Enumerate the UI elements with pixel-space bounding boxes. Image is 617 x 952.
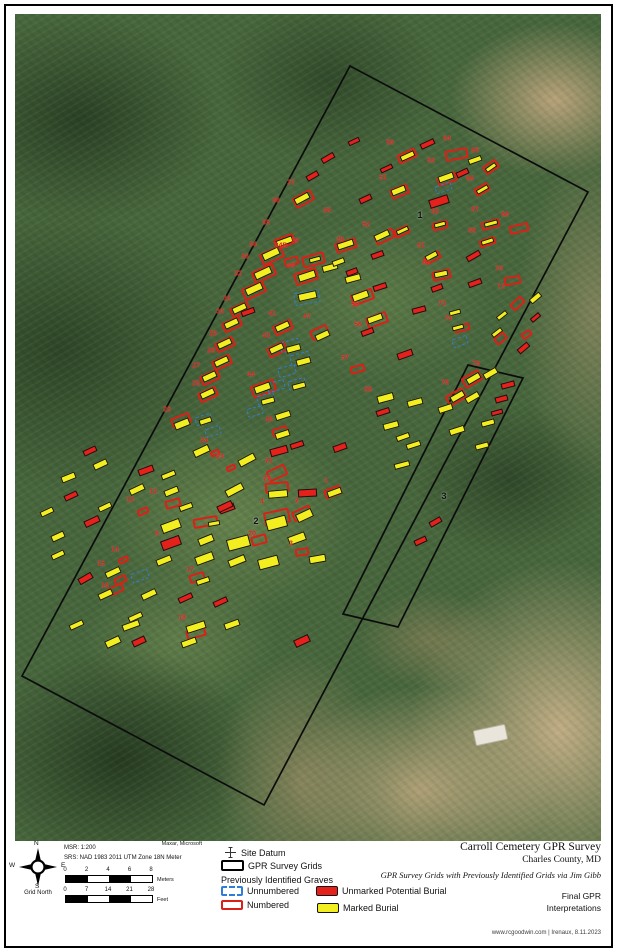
survey-grid-number-label: 2	[253, 516, 258, 526]
compass-rose-icon	[18, 847, 58, 887]
grave-number-label: 61	[417, 243, 425, 250]
scalebar-feet-bar	[65, 895, 153, 903]
grave-number-label: 50	[386, 140, 394, 147]
grave-number-label: 66	[466, 176, 474, 183]
marked-burial	[474, 441, 489, 450]
grave-number-label: 47	[303, 314, 311, 321]
grave-number-label: 17	[186, 567, 194, 574]
marked-burial	[480, 418, 495, 427]
grave-number-label: 69	[468, 228, 476, 235]
scalebar-tick-label: 0	[63, 887, 66, 893]
grave-number-label: 68	[501, 212, 509, 219]
unmarked-burial	[131, 635, 147, 647]
scalebar-segment	[109, 876, 131, 882]
unmarked-burial	[348, 136, 361, 146]
credits: www.rcgoodwin.com | Irenaux, 8.11.2023	[492, 930, 601, 936]
unmarked-burial	[83, 514, 100, 527]
grave-number-label: 36	[272, 198, 280, 205]
marked-burial	[160, 469, 176, 480]
unmarked-burial	[375, 407, 390, 417]
unmarked-burial	[500, 380, 515, 389]
unmarked-burial	[297, 489, 316, 498]
marked-burial	[465, 371, 481, 385]
marked-burial	[68, 619, 84, 631]
grave-number-label: 52	[362, 222, 370, 229]
grave-number-label: 18	[178, 615, 186, 622]
unmarked-burial	[358, 194, 372, 205]
unnumbered-grave-outline	[451, 334, 469, 348]
numbered-grave-outline	[503, 274, 521, 286]
grave-number-label: 60	[431, 209, 439, 216]
marked-burial	[448, 424, 465, 436]
grave-number-label: 31	[223, 296, 231, 303]
scalebar-segment	[131, 896, 153, 902]
grave-number-label: 24	[200, 438, 208, 445]
marked-burial	[528, 292, 542, 305]
grave-number-label: 58	[364, 387, 372, 394]
grave-number-label: 20	[248, 531, 256, 538]
numbered-grave-outline	[136, 505, 150, 516]
grave-number-label: 76	[441, 380, 449, 387]
unmarked-burial	[430, 283, 443, 293]
scalebar-tick-label: 14	[105, 887, 112, 893]
unnumbered-grave-outline	[246, 405, 264, 418]
marked-burial	[256, 554, 279, 570]
unmarked-burial	[467, 278, 482, 288]
scalebar-meters-bar	[65, 875, 153, 883]
marked-burial	[464, 390, 480, 404]
grave-number-label: 41	[268, 311, 276, 318]
grave-number-label: 34	[249, 242, 257, 249]
grave-number-label: 57	[341, 355, 349, 362]
scalebar-tick-label: 7	[85, 887, 88, 893]
scalebar-meters: 02468 Meters	[65, 867, 215, 883]
grave-number-label: 62	[422, 260, 430, 267]
marked-burial	[405, 440, 421, 450]
grave-number-label: 39	[291, 238, 299, 245]
survey-grid-number-label: 3	[441, 491, 446, 501]
grave-number-label: 49	[336, 237, 344, 244]
grave-number-label: 26	[192, 381, 200, 388]
marked-burial	[50, 530, 66, 542]
marked-burial	[92, 458, 109, 471]
marked-burial	[274, 409, 291, 421]
map-type-line1: Final GPR	[281, 891, 601, 901]
unmarked-burial	[320, 152, 335, 164]
scalebar-segment	[109, 896, 131, 902]
footer: Maxar, Microsoft N W E S Grid North MSR:…	[0, 841, 617, 948]
unmarked-burial	[465, 250, 481, 263]
grave-number-label: 63	[427, 158, 435, 165]
unmarked-burial	[413, 536, 427, 547]
unmarked-burial	[396, 348, 413, 360]
grave-number-label: 15	[97, 561, 105, 568]
survey-grid-number-label: 1	[417, 210, 422, 220]
marked-burial	[180, 636, 197, 648]
legend-site-datum: Site Datum	[224, 846, 286, 859]
grave-number-label: 3	[289, 541, 293, 548]
unmarked-burial	[428, 516, 442, 528]
grave-number-label: 65	[471, 148, 479, 155]
grave-number-label: 75	[472, 361, 480, 368]
title-block: Carroll Cemetery GPR Survey Charles Coun…	[281, 841, 601, 913]
scalebar-segment	[131, 876, 153, 882]
marked-burial	[308, 554, 326, 565]
grave-number-label: 27	[192, 363, 200, 370]
compass-w-label: W	[9, 862, 15, 869]
unnumbered-grave-outline	[204, 424, 222, 438]
numbered-grave-outline	[519, 328, 532, 340]
marked-burial	[496, 309, 509, 320]
unmarked-burial	[491, 408, 504, 416]
marked-burial	[382, 420, 399, 431]
unmarked-burial	[529, 312, 541, 323]
grave-number-label: 51	[379, 175, 387, 182]
unmarked-burial	[160, 535, 182, 551]
unmarked-burial	[379, 163, 393, 173]
grave-number-label: 35	[262, 220, 270, 227]
marked-burial	[128, 482, 145, 495]
marked-burial	[225, 534, 250, 552]
unmarked-burial	[370, 250, 384, 260]
scalebar-tick-label: 21	[126, 887, 133, 893]
unmarked-burial	[411, 305, 426, 314]
marked-burial	[121, 619, 140, 632]
unnumbered-grave-outline	[130, 568, 150, 584]
grave-number-label: 14	[111, 547, 119, 554]
grave-number-label: 46	[265, 417, 273, 424]
compass-n-label: N	[34, 840, 39, 847]
marked-burial	[192, 444, 211, 458]
marked-burial	[104, 635, 122, 649]
grave-number-label: 8	[155, 531, 159, 538]
map-page: 1234812131415161718202122232425262728293…	[0, 0, 617, 952]
scalebar-segment	[66, 896, 88, 902]
unmarked-burial	[372, 282, 387, 292]
unmarked-burial	[212, 596, 228, 608]
numbered-swatch-icon	[221, 900, 243, 910]
marked-burial	[482, 366, 498, 380]
marked-burial	[449, 389, 465, 403]
numbered-grave-outline	[225, 463, 237, 473]
marked-burial	[194, 551, 215, 566]
grave-number-label: 55	[351, 302, 359, 309]
marked-burial	[224, 482, 245, 498]
grave-number-label: 22	[263, 476, 271, 483]
marked-burial	[50, 549, 65, 560]
scalebar-tick-label: 2	[85, 867, 88, 873]
legend-numbered: Numbered	[221, 900, 289, 910]
unmarked-burial	[137, 464, 154, 476]
grid-north-label: Grid North	[8, 890, 68, 896]
srs-label: SRS: NAD 1983 2011 UTM Zone 18N Meter	[64, 855, 182, 861]
grave-number-label: 71	[497, 284, 505, 291]
unmarked-burial	[63, 490, 78, 501]
grave-number-label: 37	[287, 180, 295, 187]
grave-number-label: 40	[287, 263, 295, 270]
marked-burial	[376, 392, 394, 404]
marked-burial	[395, 432, 410, 442]
grave-number-label: 38	[323, 208, 331, 215]
marked-burial	[467, 155, 482, 165]
grave-number-label: 44	[247, 372, 255, 379]
grave-number-label: 13	[149, 489, 157, 496]
marked-burial	[197, 533, 215, 546]
grave-number-label: 30	[216, 309, 224, 316]
marked-burial	[140, 587, 157, 600]
unmarked-burial	[419, 138, 435, 150]
grave-number-label: 33	[241, 254, 249, 261]
msr-label: MSR: 1:200	[64, 845, 96, 851]
marked-burial	[223, 618, 240, 630]
grave-number-label: 25	[163, 407, 171, 414]
unmarked-burial	[289, 440, 304, 450]
unmarked-burial	[82, 445, 97, 456]
unmarked-burial	[269, 445, 288, 457]
scalebar-tick-label: 28	[148, 887, 155, 893]
scalebar-tick-label: 4	[106, 867, 109, 873]
numbered-grave-outline	[508, 222, 529, 235]
scalebar-feet-unit: Feet	[157, 897, 168, 903]
unmarked-burial	[516, 342, 530, 355]
compass-s-label: S	[35, 883, 39, 890]
scalebar-segment	[66, 876, 88, 882]
unmarked-burial	[77, 571, 93, 585]
scalebar-feet-ticks: 07142128	[65, 887, 215, 895]
unnumbered-grave-outline	[434, 181, 453, 194]
grave-number-label: 56	[354, 322, 362, 329]
marked-burial	[155, 554, 172, 566]
grave-number-label: 2	[295, 498, 299, 505]
scalebar-tick-label: 6	[128, 867, 131, 873]
map-description: GPR Survey Grids with Previously Identif…	[241, 870, 601, 880]
unmarked-burial	[177, 592, 193, 604]
site-datum-icon	[224, 846, 237, 859]
grave-number-label: 70	[495, 266, 503, 273]
site-datum-label: Site Datum	[241, 848, 286, 858]
grave-number-label: 1	[324, 478, 328, 485]
grave-number-label: 28	[207, 348, 215, 355]
grave-number-label: 21	[265, 458, 273, 465]
unmarked-burial	[305, 170, 319, 182]
marked-burial	[227, 554, 247, 568]
unnumbered-swatch-icon	[221, 886, 243, 896]
marked-burial	[39, 506, 54, 517]
scalebar-feet: 07142128 Feet	[65, 887, 215, 903]
grave-number-label: 64	[443, 136, 451, 143]
unmarked-burial	[293, 634, 311, 648]
numbered-grave-outline	[349, 363, 366, 375]
unmarked-burial	[332, 441, 348, 452]
grave-number-label: 23	[216, 454, 224, 461]
marked-burial	[393, 460, 410, 470]
numbered-grave-outline	[444, 147, 469, 162]
marked-burial	[406, 397, 423, 408]
map-title: Carroll Cemetery GPR Survey	[281, 841, 601, 853]
grave-number-label: 73	[438, 301, 446, 308]
grave-number-label: 4	[260, 499, 264, 506]
grave-number-label: 16	[101, 583, 109, 590]
map-type-line2: Interpretations	[281, 903, 601, 913]
scalebar-tick-label: 0	[63, 867, 66, 873]
marked-burial	[97, 588, 114, 601]
grave-number-label: 34B	[275, 243, 288, 250]
grave-number-label: 12	[126, 497, 134, 504]
numbered-grave-outline	[508, 295, 525, 312]
unmarked-burial	[494, 394, 508, 403]
marked-burial	[437, 402, 453, 413]
grave-number-label: 67	[471, 207, 479, 214]
scalebar-meters-unit: Meters	[157, 877, 174, 883]
grave-number-label: 29	[209, 331, 217, 338]
marked-burial	[60, 471, 77, 483]
unnumbered-grave-outline	[277, 364, 297, 378]
graves-layer: 1234812131415161718202122232425262728293…	[0, 0, 617, 841]
marked-burial	[237, 452, 257, 468]
grave-number-label: 43	[262, 333, 270, 340]
map-subtitle: Charles County, MD	[281, 855, 601, 865]
unmarked-burial	[428, 194, 450, 209]
numbered-grave-outline	[117, 555, 130, 565]
grave-number-label: 74	[444, 316, 452, 323]
marked-burial	[160, 518, 182, 534]
grave-number-label: 32	[234, 271, 242, 278]
scalebar-meters-ticks: 02468	[65, 867, 215, 875]
marked-burial	[163, 485, 180, 497]
scalebar-tick-label: 8	[149, 867, 152, 873]
marked-burial	[268, 489, 289, 499]
scalebar-segment	[88, 896, 110, 902]
marked-burial	[97, 501, 112, 512]
scalebar-segment	[88, 876, 110, 882]
